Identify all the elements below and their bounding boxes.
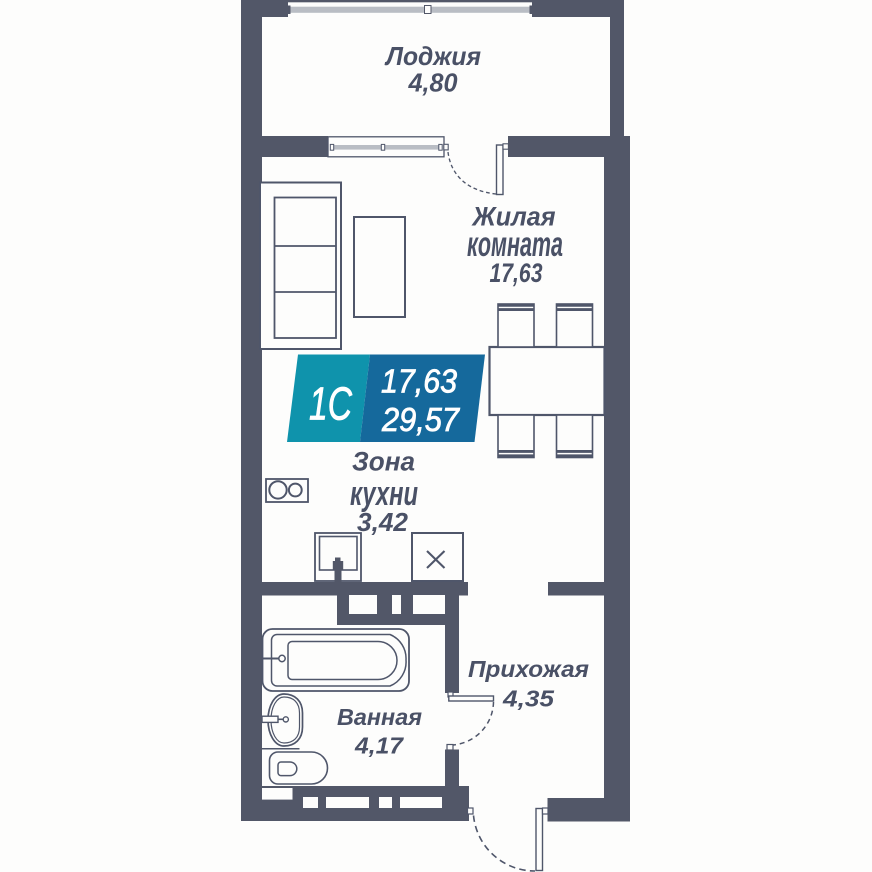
svg-text:1С: 1С <box>309 378 353 430</box>
svg-text:29,57: 29,57 <box>381 402 460 439</box>
svg-text:Зона: Зона <box>352 447 415 477</box>
svg-text:4,17: 4,17 <box>354 733 404 759</box>
svg-text:Ванная: Ванная <box>337 704 422 730</box>
svg-text:17,63: 17,63 <box>490 258 543 288</box>
svg-text:3,42: 3,42 <box>357 507 409 537</box>
svg-text:Лоджия: Лоджия <box>384 41 481 71</box>
svg-text:4,35: 4,35 <box>502 686 556 712</box>
svg-text:17,63: 17,63 <box>381 364 457 401</box>
svg-text:Прихожая: Прихожая <box>468 656 589 682</box>
svg-text:4,80: 4,80 <box>408 68 458 98</box>
